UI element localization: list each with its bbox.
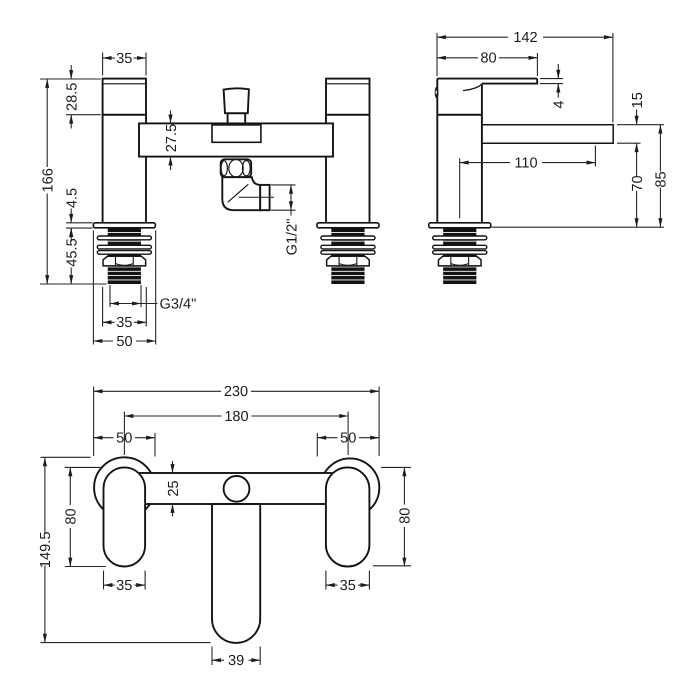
svg-text:28.5: 28.5 bbox=[65, 83, 81, 111]
svg-text:50: 50 bbox=[116, 431, 132, 447]
svg-text:180: 180 bbox=[224, 409, 248, 425]
svg-text:4: 4 bbox=[552, 100, 568, 108]
svg-text:142: 142 bbox=[513, 30, 537, 46]
svg-text:35: 35 bbox=[116, 578, 132, 594]
svg-text:39: 39 bbox=[228, 653, 244, 669]
svg-text:85: 85 bbox=[654, 171, 670, 187]
svg-text:4.5: 4.5 bbox=[65, 188, 81, 208]
svg-text:35: 35 bbox=[116, 51, 132, 67]
svg-text:80: 80 bbox=[64, 508, 80, 524]
svg-text:230: 230 bbox=[224, 384, 248, 400]
svg-text:110: 110 bbox=[514, 155, 537, 171]
svg-text:15: 15 bbox=[630, 92, 646, 108]
svg-text:50: 50 bbox=[340, 431, 356, 447]
svg-text:45.5: 45.5 bbox=[65, 238, 81, 266]
svg-text:35: 35 bbox=[340, 578, 356, 594]
svg-text:25: 25 bbox=[166, 480, 182, 496]
svg-text:27.5: 27.5 bbox=[164, 124, 180, 152]
svg-text:35: 35 bbox=[116, 315, 132, 331]
svg-text:70: 70 bbox=[630, 175, 646, 191]
svg-text:80: 80 bbox=[480, 51, 496, 67]
svg-text:166: 166 bbox=[41, 168, 57, 192]
svg-text:50: 50 bbox=[116, 334, 132, 350]
svg-text:G1/2": G1/2" bbox=[284, 219, 300, 256]
svg-text:G3/4": G3/4" bbox=[160, 297, 197, 313]
svg-text:149.5: 149.5 bbox=[38, 532, 54, 569]
svg-text:80: 80 bbox=[398, 508, 414, 524]
